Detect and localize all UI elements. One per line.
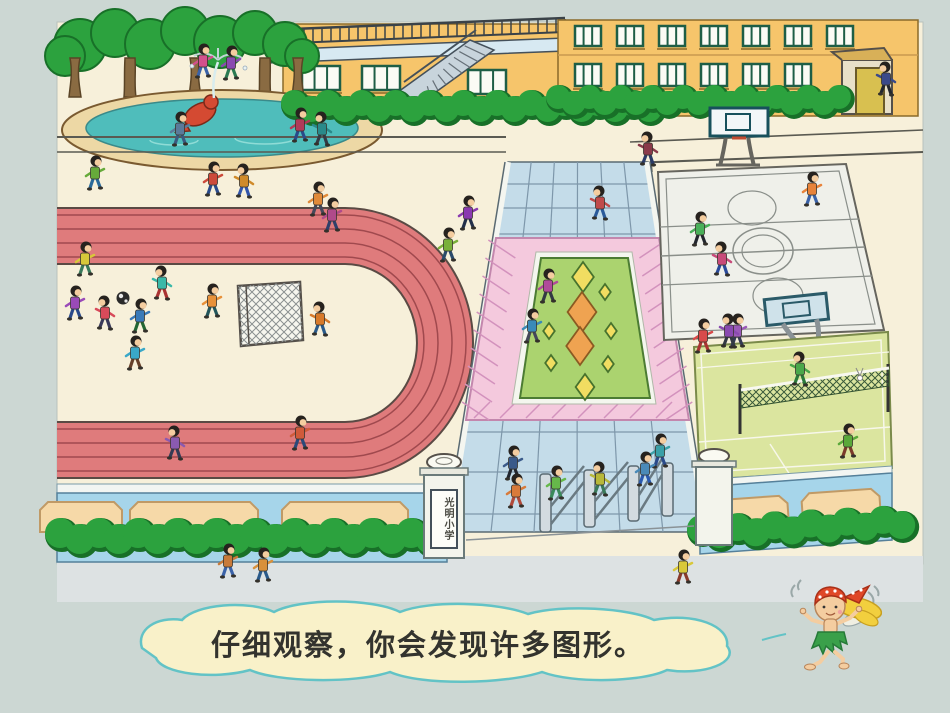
gate-pillar-right xyxy=(692,449,736,545)
school-sign-text: 光明小学 xyxy=(433,493,455,545)
outer-sidewalk xyxy=(57,556,923,602)
left-wall xyxy=(40,484,450,562)
speech-bubble-text: 仔细观察，你会发现许多图形。 xyxy=(132,617,724,675)
soccer-ball xyxy=(117,292,130,305)
school-campus-illustration xyxy=(0,0,950,713)
soccer-goal xyxy=(238,282,303,346)
flower-bed xyxy=(462,238,692,420)
slide: 仔细观察，你会发现许多图形。 光明小学 xyxy=(0,0,950,713)
